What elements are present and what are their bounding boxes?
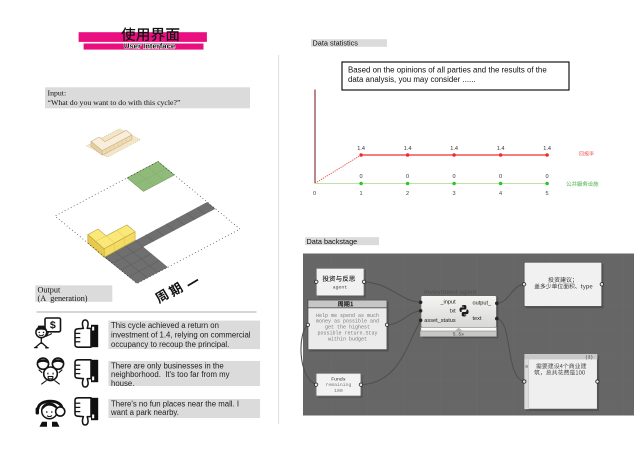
svg-text:User Interface: User Interface — [124, 41, 176, 50]
svg-text:want a park nearby.: want a park nearby. — [110, 408, 179, 417]
svg-text:1.4: 1.4 — [404, 146, 412, 152]
svg-text:1.4: 1.4 — [543, 146, 551, 152]
svg-text:agent: agent — [333, 285, 348, 291]
svg-text:0: 0 — [360, 174, 363, 180]
svg-text:This cycle achieved a return o: This cycle achieved a return on — [111, 321, 219, 330]
svg-text:0: 0 — [406, 174, 409, 180]
svg-text:Data statistics: Data statistics — [313, 38, 359, 47]
svg-text:0: 0 — [546, 174, 549, 180]
svg-text:(A generation): (A generation) — [38, 294, 88, 303]
svg-text:neighborhood. It's too far fr: neighborhood. It's too far from my — [111, 370, 230, 379]
svg-text:output_: output_ — [473, 300, 493, 306]
svg-text:3: 3 — [453, 191, 456, 197]
svg-text:0: 0 — [525, 364, 528, 370]
svg-text:remaining: remaining — [326, 382, 352, 388]
svg-text:asset_status: asset_status — [424, 318, 456, 324]
svg-text:text: text — [473, 316, 482, 322]
svg-text:100: 100 — [334, 388, 343, 394]
svg-text:within budget: within budget — [328, 336, 367, 342]
svg-text:There's no fun places near the: There's no fun places near the mall. I — [111, 399, 239, 408]
svg-text:5: 5 — [546, 191, 549, 197]
svg-text:0: 0 — [313, 191, 316, 197]
svg-text:data analysis, you may conside: data analysis, you may consider ...... — [348, 75, 476, 84]
svg-text:2: 2 — [406, 191, 409, 197]
svg-text:Based on the opinions of all p: Based on the opinions of all parties and… — [348, 66, 547, 75]
svg-text:occupancy to recoup the princi: occupancy to recoup the principal. — [111, 340, 229, 349]
svg-text:1.4: 1.4 — [357, 146, 365, 152]
svg-text:0: 0 — [453, 174, 456, 180]
svg-text:1: 1 — [360, 191, 363, 197]
svg-text:1.4: 1.4 — [497, 146, 505, 152]
svg-text:1.4: 1.4 — [450, 146, 458, 152]
svg-text:“What do you want to do with t: “What do you want to do with this cycle?… — [48, 98, 181, 107]
svg-text:Funds: Funds — [331, 376, 346, 382]
svg-text:investment agent: investment agent — [424, 289, 477, 296]
svg-text:5.5s: 5.5s — [453, 332, 464, 338]
svg-text:_input: _input — [439, 299, 456, 305]
svg-text:Data backstage: Data backstage — [307, 237, 358, 246]
svg-text:house.: house. — [111, 379, 134, 388]
svg-text:investment of 1.4, relying on: investment of 1.4, relying on commercial — [111, 330, 251, 339]
svg-text:Input:: Input: — [48, 88, 67, 97]
svg-text:0: 0 — [499, 174, 502, 180]
svg-text:There are only businesses in t: There are only businesses in the — [111, 361, 224, 370]
svg-text:(3): (3) — [585, 356, 593, 361]
svg-text:4: 4 — [499, 191, 502, 197]
svg-text:txt: txt — [450, 309, 456, 315]
